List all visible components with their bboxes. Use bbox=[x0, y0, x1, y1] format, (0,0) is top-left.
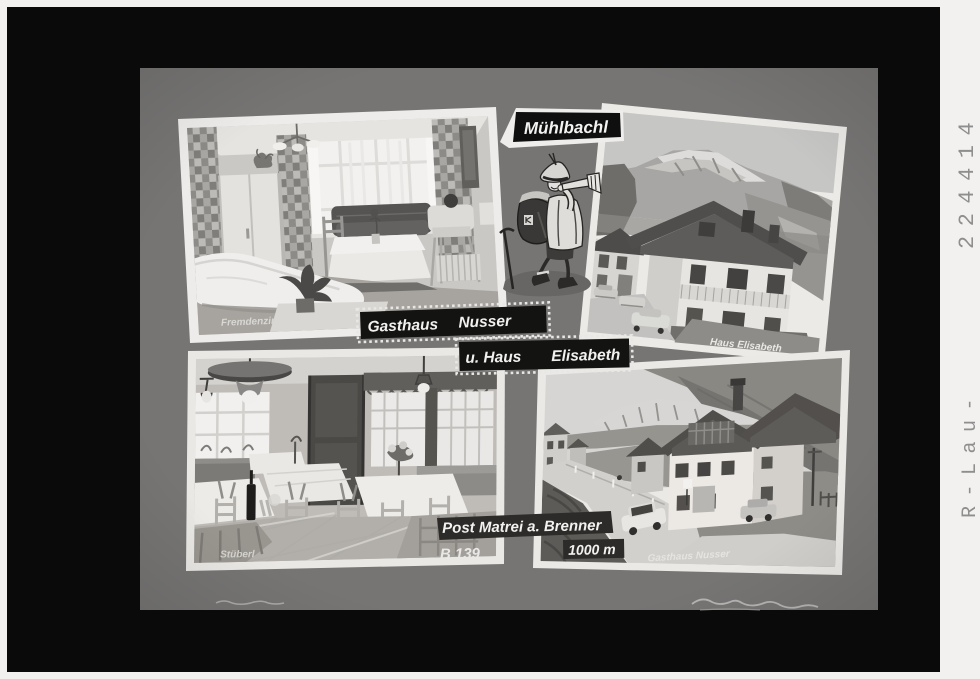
svg-text:R-Lau-: R-Lau- bbox=[959, 389, 980, 518]
svg-text:224414: 224414 bbox=[955, 113, 980, 249]
